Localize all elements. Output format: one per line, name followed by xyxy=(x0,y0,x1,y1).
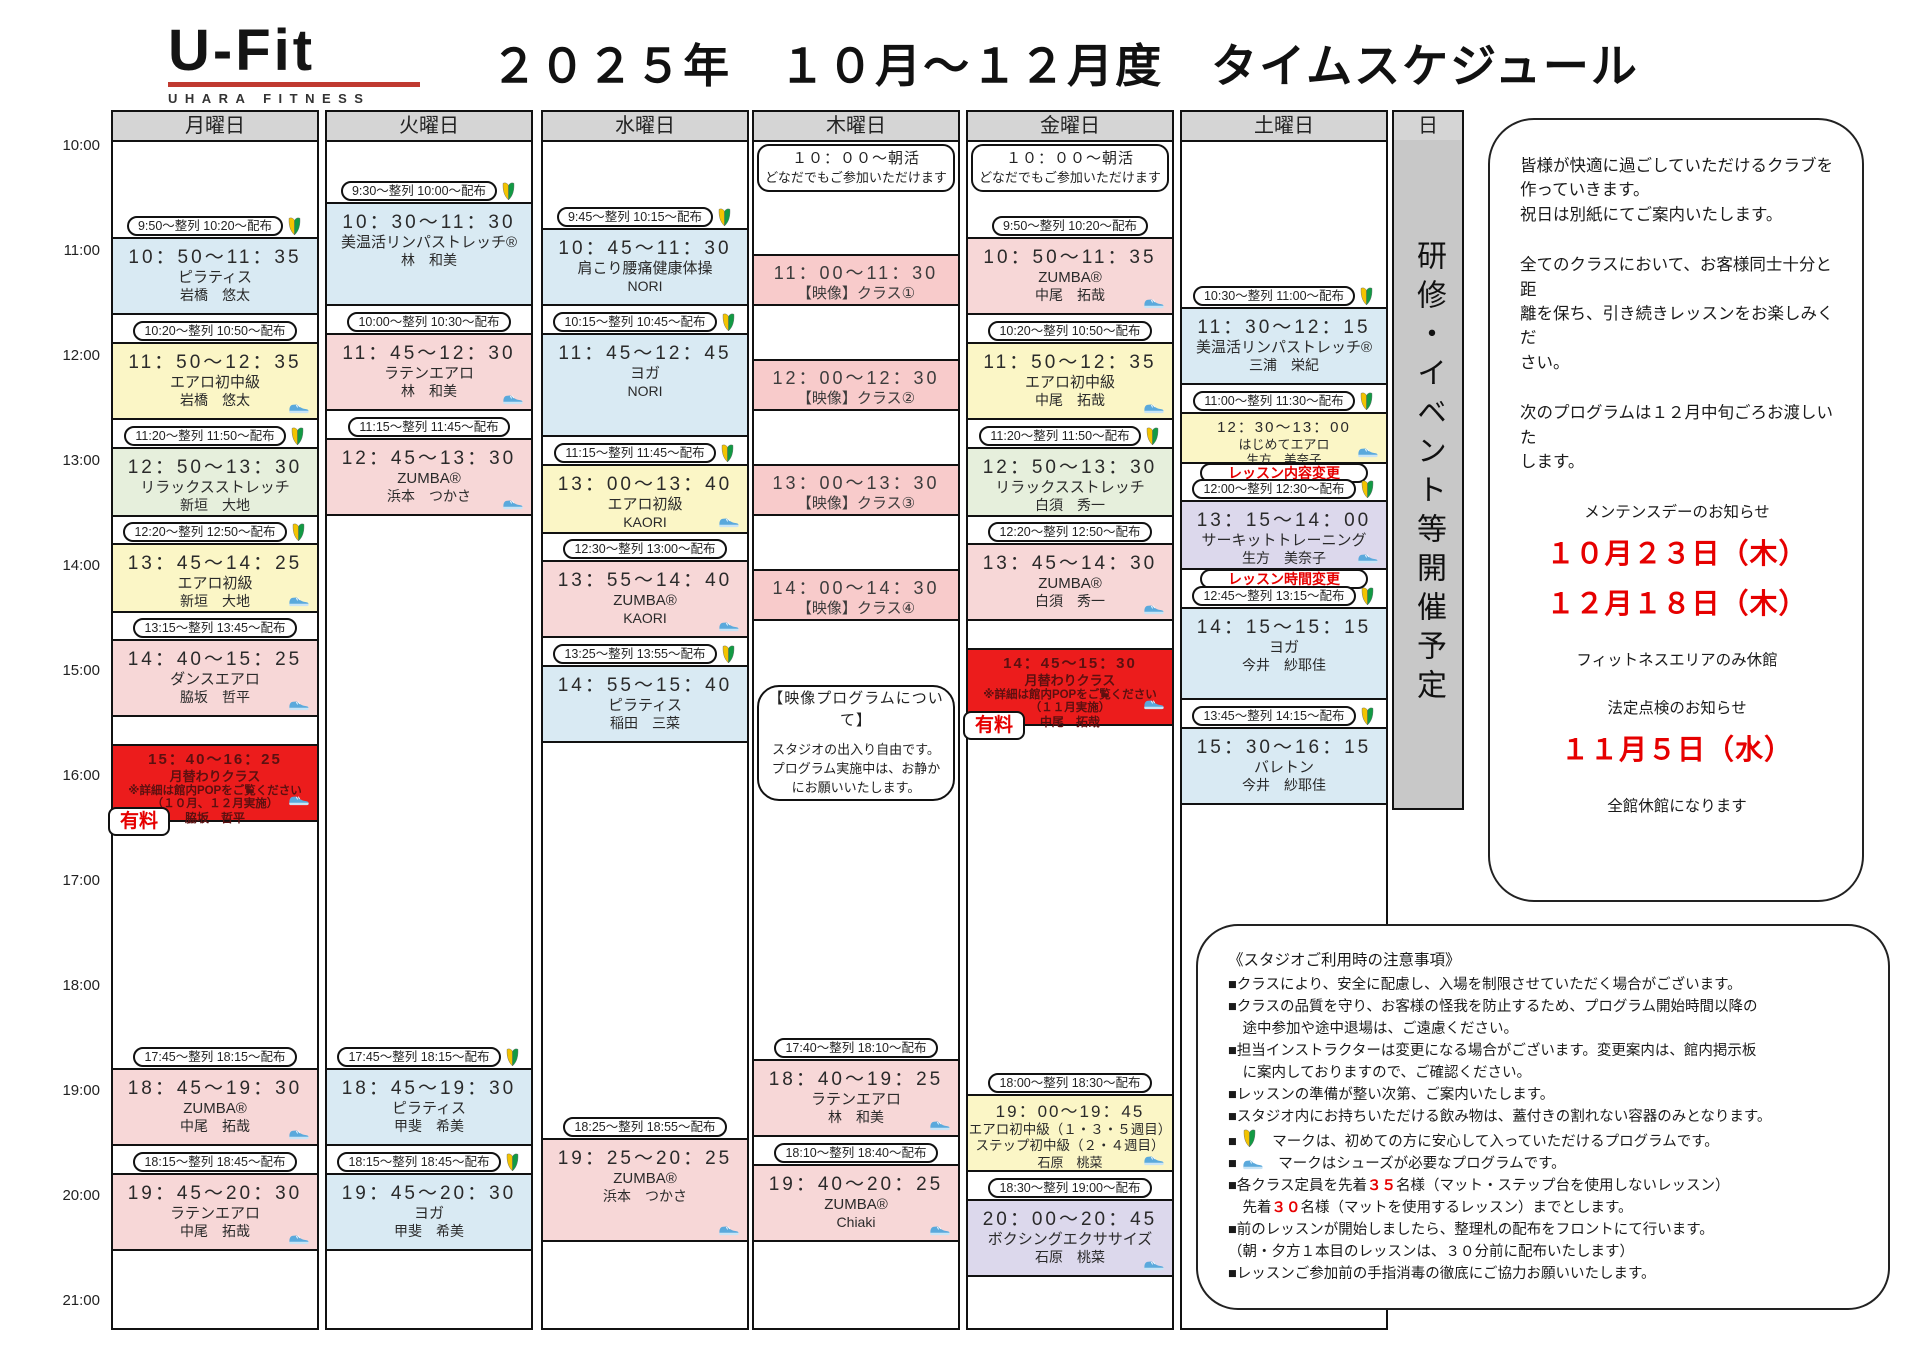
shoes-required-icon xyxy=(1142,1153,1165,1170)
class-instructor: 新垣 大地 xyxy=(113,497,317,515)
column-wednesday: 水曜日10：45～11：30肩こり腰痛健康体操NORI9:45～整列 10:15… xyxy=(541,110,749,1330)
class-name: ZUMBA® xyxy=(543,1170,747,1188)
lineup-time-badge: 12:20～整列 12:50～配布 xyxy=(123,522,286,542)
shoes-required-icon xyxy=(1142,296,1165,309)
class-block: 12：50～13：30リラックスストレッチ新垣 大地 xyxy=(111,447,319,517)
shoes-required-icon xyxy=(1142,401,1165,414)
beginner-mark-icon xyxy=(1241,1128,1258,1148)
maintenance-title: メンテンスデーのお知らせ xyxy=(1520,500,1834,522)
class-block: 14：45～15：30月替わりクラス※詳細は館内POPをご覧ください（１１月実施… xyxy=(966,648,1174,726)
class-name: ヨガ xyxy=(327,1205,531,1223)
class-time: 19：25～20：25 xyxy=(543,1143,747,1170)
class-instructor: 甲斐 希美 xyxy=(327,1118,531,1136)
shoes-required-icon xyxy=(287,401,310,418)
info-box-line: プログラム実施中は、お静か xyxy=(759,760,953,779)
notes-text: ■ xyxy=(1228,1134,1241,1150)
notes-line: 先着３０名様（マットを使用するレッスン）までとします。 xyxy=(1228,1197,1864,1219)
class-name: ダンスエアロ xyxy=(113,671,317,689)
class-name: 月替わりクラス xyxy=(113,769,317,785)
time-label: 12:00 xyxy=(34,347,100,364)
notes-text: 先着 xyxy=(1228,1200,1272,1216)
shoes-required-icon xyxy=(1142,296,1165,313)
shoes-required-icon xyxy=(928,1118,951,1135)
class-name: バレトン xyxy=(1182,759,1386,777)
class-name: ZUMBA® xyxy=(327,470,531,488)
column-sunday: 日 研修・イベント等開催予定 xyxy=(1392,110,1464,810)
class-time: 13：45～14：30 xyxy=(968,548,1172,575)
class-time: 13：15～14：00 xyxy=(1182,505,1386,532)
shoes-required-icon xyxy=(717,1223,740,1236)
shoes-required-icon xyxy=(287,1127,310,1144)
lineup-time-badge: 12:20～整列 12:50～配布 xyxy=(988,522,1151,542)
shoes-required-icon xyxy=(1142,697,1165,714)
class-block: 12：50～13：30リラックスストレッチ白須 秀一 xyxy=(966,447,1174,517)
notes-line: ■クラスの品質を守り、お客様の怪我を防止するため、プログラム開始時間以降の xyxy=(1228,996,1864,1018)
time-label: 11:00 xyxy=(34,242,100,259)
column-friday: 金曜日１０：００～朝活どなだでもご参加いただけます10：50～11：35ZUMB… xyxy=(966,110,1174,1330)
class-time: 14：00～14：30 xyxy=(754,574,958,600)
class-time: 14：45～15：30 xyxy=(968,652,1172,673)
notes-text: マークはシューズが必要なプログラムです。 xyxy=(1264,1156,1566,1172)
class-name: ZUMBA® xyxy=(113,1100,317,1118)
class-block: 20：00～20：45ボクシングエクササイズ石原 桃菜 xyxy=(966,1199,1174,1277)
class-block: 12：45～13：30ZUMBA®浜本 つかさ xyxy=(325,438,533,516)
lineup-time-badge: 11:20～整列 11:50～配布 xyxy=(979,426,1140,446)
notes-lines: ■クラスにより、安全に配慮し、入場を制限させていただく場合がございます。■クラス… xyxy=(1228,974,1864,1285)
shoes-required-icon xyxy=(1142,602,1165,615)
shoes-required-icon xyxy=(287,793,310,810)
notes-text: ■ xyxy=(1228,1156,1241,1172)
shoes-required-icon xyxy=(1356,445,1379,458)
class-name: ボクシングエクササイズ xyxy=(968,1231,1172,1249)
shoes-required-icon xyxy=(928,1223,951,1236)
notes-line: ■クラスにより、安全に配慮し、入場を制限させていただく場合がございます。 xyxy=(1228,974,1864,996)
class-block: 13：45～14：30ZUMBA®白須 秀一 xyxy=(966,543,1174,621)
inspection-date: １１月５日（水） xyxy=(1520,728,1834,768)
class-block: 14：55～15：40ピラティス稲田 三菜 xyxy=(541,665,749,743)
class-time: 18：40～19：25 xyxy=(754,1064,958,1091)
class-instructor: NORI xyxy=(543,278,747,296)
class-name: 月替わりクラス xyxy=(968,673,1172,689)
shoes-required-icon xyxy=(1356,551,1379,564)
notes-line: に案内しておりますので、ご確認ください。 xyxy=(1228,1062,1864,1084)
info-box-line: スタジオの出入り自由です。 xyxy=(759,741,953,760)
class-time: 14：15～15：15 xyxy=(1182,612,1386,639)
logo-brand-text: U-Fit xyxy=(168,22,428,80)
class-badge-row: 18:15～整列 18:45～配布 xyxy=(113,1152,317,1172)
class-name: ZUMBA® xyxy=(968,269,1172,287)
shoes-required-icon xyxy=(1241,1157,1264,1170)
info-box-line: どなだでもご参加いただけます xyxy=(973,169,1167,188)
class-badge-row: 9:50～整列 10:20～配布 xyxy=(968,216,1172,236)
class-block: 12：00～12：30【映像】クラス② xyxy=(752,359,960,411)
column-monday: 月曜日10：50～11：35ピラティス岩橋 悠太9:50～整列 10:20～配布… xyxy=(111,110,319,1330)
notes-line: （朝・夕方１本目のレッスンは、３０分前に配布いたします） xyxy=(1228,1241,1864,1263)
morning-activity-box: １０：００～朝活どなだでもご参加いただけます xyxy=(971,144,1169,192)
notes-line: ■スタジオ内にお持ちいただける飲み物は、蓋付きの割れない容器のみとなります。 xyxy=(1228,1106,1864,1128)
notes-text: （朝・夕方１本目のレッスンは、３０分前に配布いたします） xyxy=(1228,1244,1634,1260)
shoes-required-icon xyxy=(1142,1153,1165,1166)
time-label: 21:00 xyxy=(34,1292,100,1309)
class-block: 19：40～20：25ZUMBA®Chiaki xyxy=(752,1164,960,1242)
shoes-required-icon xyxy=(501,497,524,510)
class-instructor: 三浦 栄紀 xyxy=(1182,357,1386,375)
class-badge-row: 12:30～整列 13:00～配布 xyxy=(543,539,747,559)
info-panel: 皆様が快適に過ごしていただけるクラブを 作っていきます。 祝日は別紙にてご案内い… xyxy=(1488,118,1864,902)
shoes-required-icon xyxy=(1356,551,1379,568)
lineup-time-badge: 12:45～整列 13:15～配布 xyxy=(1192,586,1355,606)
time-label: 15:00 xyxy=(34,662,100,679)
lineup-time-badge: 17:45～整列 18:15～配布 xyxy=(133,1047,296,1067)
lineup-time-badge: 11:15～整列 11:45～配布 xyxy=(554,443,715,463)
class-block: 15：30～16：15バレトン今井 紗耶佳 xyxy=(1180,727,1388,805)
class-time: 13：00～13：40 xyxy=(543,469,747,496)
info-paragraph: 次のプログラムは１２月中旬ごろお渡しいた します。 xyxy=(1520,401,1834,474)
class-name: エアロ初中級（１・３・５週目） xyxy=(968,1122,1172,1138)
maintenance-note: フィットネスエリアのみ休館 xyxy=(1520,648,1834,670)
time-label: 14:00 xyxy=(34,557,100,574)
class-block: 13：15～14：00サーキットトレーニング生方 美奈子 xyxy=(1180,500,1388,570)
time-label: 20:00 xyxy=(34,1187,100,1204)
notes-line: ■ マークは、初めての方に安心して入っていただけるプログラムです。 xyxy=(1228,1128,1864,1153)
class-instructor: 今井 紗耶佳 xyxy=(1182,777,1386,795)
shoes-required-icon xyxy=(1356,445,1379,462)
notes-line: ■前のレッスンが開始しましたら、整理札の配布をフロントにて行います。 xyxy=(1228,1219,1864,1241)
class-block: 11：45～12：30ラテンエアロ林 和美 xyxy=(325,333,533,411)
notes-line: ■担当インストラクターは変更になる場合がございます。変更案内は、館内掲示板 xyxy=(1228,1040,1864,1062)
class-badge-row: 10:20～整列 10:50～配布 xyxy=(968,321,1172,341)
lineup-time-badge: 9:45～整列 10:15～配布 xyxy=(557,207,713,227)
info-box-line: １０：００～朝活 xyxy=(759,148,953,170)
class-name: 美温活リンパストレッチ® xyxy=(1182,339,1386,357)
lineup-time-badge: 18:15～整列 18:45～配布 xyxy=(337,1152,500,1172)
info-box-line xyxy=(759,731,953,741)
schedule-poster: U-Fit UHARA FITNESS ２０２５年 １０月～１２月度 タイムスケ… xyxy=(0,0,1920,1357)
shoes-required-icon xyxy=(928,1223,951,1240)
class-time: 13：00～13：30 xyxy=(754,469,958,495)
class-time: 12：00～12：30 xyxy=(754,364,958,390)
class-name: ラテンエアロ xyxy=(754,1091,958,1109)
day-header-tuesday: 火曜日 xyxy=(327,112,531,142)
column-thursday: 木曜日１０：００～朝活どなだでもご参加いただけます【映像プログラムについて】スタ… xyxy=(752,110,960,1330)
time-label: 13:00 xyxy=(34,452,100,469)
lineup-time-badge: 12:30～整列 13:00～配布 xyxy=(563,539,726,559)
class-time: 11：50～12：35 xyxy=(968,347,1172,374)
class-badge-row: 18:00～整列 18:30～配布 xyxy=(968,1073,1172,1093)
shoes-required-icon xyxy=(717,515,740,528)
shoes-required-icon xyxy=(501,497,524,514)
class-name: ピラティス xyxy=(113,269,317,287)
shoes-required-icon xyxy=(1142,602,1165,619)
shoes-required-icon xyxy=(717,515,740,532)
class-block: 14：00～14：30【映像】クラス④ xyxy=(752,569,960,621)
notes-line: ■ マークはシューズが必要なプログラムです。 xyxy=(1228,1153,1864,1175)
class-name: 肩こり腰痛健康体操 xyxy=(543,260,747,278)
shoes-required-icon xyxy=(501,392,524,405)
class-time: 19：00～19：45 xyxy=(968,1097,1172,1122)
class-time: 12：50～13：30 xyxy=(113,452,317,479)
class-block: 15：40～16：25月替わりクラス※詳細は館内POPをご覧ください（１０月、１… xyxy=(111,744,319,822)
ufit-logo: U-Fit UHARA FITNESS xyxy=(168,22,428,106)
class-time: 11：50～12：35 xyxy=(113,347,317,374)
inspection-title: 法定点検のお知らせ xyxy=(1520,696,1834,718)
class-badge-row: 18:30～整列 19:00～配布 xyxy=(968,1178,1172,1198)
class-block: 13：45～14：25エアロ初級新垣 大地 xyxy=(111,543,319,613)
lineup-time-badge: 18:25～整列 18:55～配布 xyxy=(563,1117,726,1137)
notes-line: ■レッスンご参加前の手指消毒の徹底にご協力お願いいたします。 xyxy=(1228,1263,1864,1285)
class-block: 19：00～19：45エアロ初中級（１・３・５週目）ステップ初中級（２・４週目）… xyxy=(966,1094,1174,1172)
class-name: 【映像】クラス① xyxy=(754,285,958,303)
morning-activity-box: １０：００～朝活どなだでもご参加いただけます xyxy=(757,144,955,192)
notes-title: 《スタジオご利用時の注意事項》 xyxy=(1228,948,1864,970)
notes-text: 名様（マットを使用するレッスン）までとします。 xyxy=(1301,1200,1633,1216)
class-block: 11：45～12：45ヨガNORI xyxy=(541,333,749,437)
day-header-saturday: 土曜日 xyxy=(1182,112,1386,142)
class-badge-row: 10:00～整列 10:30～配布 xyxy=(327,312,531,332)
class-block: 13：00～13：30【映像】クラス③ xyxy=(752,464,960,516)
lesson-change-label: レッスン内容変更 xyxy=(1200,463,1367,483)
notes-text: 名様（マット・ステップ台を使用しないレッスン） xyxy=(1396,1178,1730,1194)
page-title: ２０２５年 １０月～１２月度 タイムスケジュール xyxy=(440,30,1690,96)
class-name: 【映像】クラス④ xyxy=(754,600,958,618)
shoes-required-icon xyxy=(717,1223,740,1240)
notes-line: 途中参加や途中退場は、ご遠慮ください。 xyxy=(1228,1018,1864,1040)
class-time: 12：30～13：00 xyxy=(1182,416,1386,437)
class-badge-row: 10:20～整列 10:50～配布 xyxy=(113,321,317,341)
class-time: 12：50～13：30 xyxy=(968,452,1172,479)
inspection-note: 全館休館になります xyxy=(1520,794,1834,816)
lineup-time-badge: 13:25～整列 13:55～配布 xyxy=(553,644,716,664)
class-time: 15：30～16：15 xyxy=(1182,732,1386,759)
lineup-time-badge: 11:20～整列 11:50～配布 xyxy=(124,426,285,446)
notes-text: マークは、初めての方に安心して入っていただけるプログラムです。 xyxy=(1258,1134,1719,1150)
lineup-time-badge: 9:50～整列 10:20～配布 xyxy=(992,216,1148,236)
column-tuesday: 火曜日10：30～11：30美温活リンパストレッチ®林 和美9:30～整列 10… xyxy=(325,110,533,1330)
class-block: 11：30～12：15美温活リンパストレッチ®三浦 栄紀 xyxy=(1180,307,1388,385)
time-label: 10:00 xyxy=(34,137,100,154)
class-instructor: 甲斐 希美 xyxy=(327,1223,531,1241)
day-header-thursday: 木曜日 xyxy=(754,112,958,142)
class-block: 14：40～15：25ダンスエアロ脇坂 哲平 xyxy=(111,639,319,717)
shoes-required-icon xyxy=(1142,1258,1165,1271)
class-time: 11：00～11：30 xyxy=(754,259,958,285)
class-name: ピラティス xyxy=(327,1100,531,1118)
class-block: 18：45～19：30ピラティス甲斐 希美 xyxy=(325,1068,533,1146)
notes-text: ■クラスの品質を守り、お客様の怪我を防止するため、プログラム開始時間以降の xyxy=(1228,999,1757,1015)
notes-text: ■クラスにより、安全に配慮し、入場を制限させていただく場合がございます。 xyxy=(1228,977,1742,993)
class-time: 14：55～15：40 xyxy=(543,670,747,697)
notes-text: ■レッスンご参加前の手指消毒の徹底にご協力お願いいたします。 xyxy=(1228,1266,1656,1282)
shoes-required-icon xyxy=(1142,401,1165,418)
notes-line: ■各クラス定員を先着３５名様（マット・ステップ台を使用しないレッスン） xyxy=(1228,1175,1864,1197)
shoes-required-icon xyxy=(1142,1258,1165,1275)
notes-text: ■各クラス定員を先着 xyxy=(1228,1178,1367,1194)
info-box-line: １０：００～朝活 xyxy=(973,148,1167,170)
class-time: 10：45～11：30 xyxy=(543,233,747,260)
class-badge-row: 11:15～整列 11:45～配布 xyxy=(327,417,531,437)
shoes-required-icon xyxy=(287,401,310,414)
notes-text: ■前のレッスンが開始しましたら、整理札の配布をフロントにて行います。 xyxy=(1228,1222,1714,1238)
class-block: 11：00～11：30【映像】クラス① xyxy=(752,254,960,306)
class-instructor: 岩橋 悠太 xyxy=(113,287,317,305)
class-time: 12：45～13：30 xyxy=(327,443,531,470)
class-block: 10：30～11：30美温活リンパストレッチ®林 和美 xyxy=(325,202,533,306)
shoes-required-icon xyxy=(287,594,310,611)
lineup-time-badge: 10:00～整列 10:30～配布 xyxy=(347,312,510,332)
notes-text: に案内しておりますので、ご確認ください。 xyxy=(1228,1065,1531,1081)
class-block: 10：50～11：35ピラティス岩橋 悠太 xyxy=(111,237,319,315)
class-block: 11：50～12：35エアロ初中級中尾 拓哉 xyxy=(966,342,1174,420)
notes-text: ■スタジオ内にお持ちいただける飲み物は、蓋付きの割れない容器のみとなります。 xyxy=(1228,1109,1771,1125)
day-header-wednesday: 水曜日 xyxy=(543,112,747,142)
class-name: 美温活リンパストレッチ® xyxy=(327,234,531,252)
shoes-required-icon xyxy=(287,594,310,607)
shoes-required-icon xyxy=(287,1127,310,1140)
class-time: 18：45～19：30 xyxy=(113,1073,317,1100)
notes-text: ■担当インストラクターは変更になる場合がございます。変更案内は、館内掲示板 xyxy=(1228,1043,1756,1059)
paid-badge: 有料 xyxy=(108,807,170,836)
lineup-time-badge: 17:45～整列 18:15～配布 xyxy=(337,1047,500,1067)
class-instructor: 稲田 三菜 xyxy=(543,715,747,733)
shoes-required-icon xyxy=(1142,697,1165,710)
class-name: エアロ初中級 xyxy=(113,374,317,392)
shoes-required-icon xyxy=(501,392,524,409)
class-time: 10：50～11：35 xyxy=(968,242,1172,269)
class-block: 18：45～19：30ZUMBA®中尾 拓哉 xyxy=(111,1068,319,1146)
lineup-time-badge: 11:15～整列 11:45～配布 xyxy=(348,417,509,437)
class-instructor: 浜本 つかさ xyxy=(543,1188,747,1206)
class-badge-row: 18:10～整列 18:40～配布 xyxy=(754,1143,958,1163)
class-time: 10：50～11：35 xyxy=(113,242,317,269)
logo-subtitle: UHARA FITNESS xyxy=(168,91,428,106)
class-time: 15：40～16：25 xyxy=(113,748,317,769)
time-label: 19:00 xyxy=(34,1082,100,1099)
sunday-vertical-text: 研修・イベント等開催予定 xyxy=(1406,240,1450,708)
lineup-time-badge: 10:30～整列 11:00～配布 xyxy=(1193,286,1355,306)
shoes-required-icon xyxy=(717,619,740,632)
class-block: 18：40～19：25ラテンエアロ林 和美 xyxy=(752,1059,960,1137)
class-name: 【映像】クラス② xyxy=(754,390,958,408)
notes-text: 途中参加や途中退場は、ご遠慮ください。 xyxy=(1228,1021,1518,1037)
lineup-time-badge: 10:15～整列 10:45～配布 xyxy=(553,312,716,332)
lineup-time-badge: 18:10～整列 18:40～配布 xyxy=(774,1143,937,1163)
class-name: リラックスストレッチ xyxy=(113,479,317,497)
lineup-time-badge: 17:40～整列 18:10～配布 xyxy=(774,1038,937,1058)
class-time: 19：45～20：30 xyxy=(113,1178,317,1205)
day-header-monday: 月曜日 xyxy=(113,112,317,142)
shoes-required-icon xyxy=(287,1232,310,1249)
day-header-sunday: 日 xyxy=(1394,112,1462,142)
class-name: ZUMBA® xyxy=(754,1196,958,1214)
shoes-required-icon xyxy=(928,1118,951,1131)
class-block: 19：25～20：25ZUMBA®浜本 つかさ xyxy=(541,1138,749,1242)
class-time: 13：45～14：25 xyxy=(113,548,317,575)
day-header-friday: 金曜日 xyxy=(968,112,1172,142)
class-time: 14：40～15：25 xyxy=(113,644,317,671)
shoes-required-icon xyxy=(287,793,310,806)
lineup-time-badge: 13:45～整列 14:15～配布 xyxy=(1192,706,1355,726)
time-label: 17:00 xyxy=(34,872,100,889)
shoes-required-icon xyxy=(287,1232,310,1245)
maintenance-date-1: １０月２３日（木） xyxy=(1520,532,1834,572)
class-name: リラックスストレッチ xyxy=(968,479,1172,497)
time-label: 16:00 xyxy=(34,767,100,784)
info-paragraph: 皆様が快適に過ごしていただけるクラブを 作っていきます。 祝日は別紙にてご案内い… xyxy=(1520,154,1834,227)
studio-notes-panel: 《スタジオご利用時の注意事項》 ■クラスにより、安全に配慮し、入場を制限させてい… xyxy=(1196,924,1890,1310)
class-time: 11：30～12：15 xyxy=(1182,312,1386,339)
lineup-time-badge: 10:20～整列 10:50～配布 xyxy=(133,321,296,341)
class-badge-row: 13:15～整列 13:45～配布 xyxy=(113,618,317,638)
class-block: 14：15～15：15ヨガ今井 紗耶佳 xyxy=(1180,607,1388,700)
lineup-time-badge: 10:20～整列 10:50～配布 xyxy=(988,321,1151,341)
lineup-time-badge: 11:00～整列 11:30～配布 xyxy=(1193,391,1354,411)
class-badge-row: 18:25～整列 18:55～配布 xyxy=(543,1117,747,1137)
info-paragraphs: 皆様が快適に過ごしていただけるクラブを 作っていきます。 祝日は別紙にてご案内い… xyxy=(1520,154,1834,474)
class-time: 10：30～11：30 xyxy=(327,207,531,234)
sunday-note-area: 研修・イベント等開催予定 xyxy=(1394,140,1462,808)
class-name: エアロ初級 xyxy=(543,496,747,514)
class-badge-row: 17:40～整列 18:10～配布 xyxy=(754,1038,958,1058)
shoes-required-icon xyxy=(287,698,310,711)
video-program-box: 【映像プログラムについて】スタジオの出入り自由です。プログラム実施中は、お静かに… xyxy=(757,685,955,801)
class-name: ヨガ xyxy=(543,365,747,383)
shoes-required-icon xyxy=(717,619,740,636)
info-box-line: 【映像プログラムについて】 xyxy=(759,688,953,732)
shoes-required-icon xyxy=(287,698,310,715)
lineup-time-badge: 9:30～整列 10:00～配布 xyxy=(341,181,497,201)
class-time: 13：55～14：40 xyxy=(543,565,747,592)
class-name: ZUMBA® xyxy=(543,592,747,610)
class-name: サーキットトレーニング xyxy=(1182,532,1386,550)
notes-text: ■レッスンの準備が整い次第、ご案内いたします。 xyxy=(1228,1087,1554,1103)
class-time: 11：45～12：45 xyxy=(543,338,747,365)
notes-red-number: ３０ xyxy=(1272,1200,1301,1216)
class-badge-row: 17:45～整列 18:15～配布 xyxy=(113,1047,317,1067)
class-instructor: 白須 秀一 xyxy=(968,497,1172,515)
class-block: 19：45～20：30ヨガ甲斐 希美 xyxy=(325,1173,533,1251)
class-instructor: NORI xyxy=(543,383,747,401)
class-block: 19：45～20：30ラテンエアロ中尾 拓哉 xyxy=(111,1173,319,1251)
class-time: 11：45～12：30 xyxy=(327,338,531,365)
class-name: 【映像】クラス③ xyxy=(754,495,958,513)
class-block: 12：30～13：00はじめてエアロ生方 美奈子 xyxy=(1180,412,1388,464)
class-instructor: 林 和美 xyxy=(327,252,531,270)
info-box-line: にお願いいたします。 xyxy=(759,779,953,798)
class-name: ZUMBA® xyxy=(968,575,1172,593)
notes-line: ■レッスンの準備が整い次第、ご案内いたします。 xyxy=(1228,1084,1864,1106)
info-box-line: どなだでもご参加いただけます xyxy=(759,169,953,188)
lineup-time-badge: 18:00～整列 18:30～配布 xyxy=(988,1073,1151,1093)
lineup-time-badge: 13:15～整列 13:45～配布 xyxy=(133,618,296,638)
class-time: 18：45～19：30 xyxy=(327,1073,531,1100)
class-block: 10：45～11：30肩こり腰痛健康体操NORI xyxy=(541,228,749,306)
class-name: エアロ初級 xyxy=(113,575,317,593)
class-name: ラテンエアロ xyxy=(327,365,531,383)
time-label: 18:00 xyxy=(34,977,100,994)
class-name: ラテンエアロ xyxy=(113,1205,317,1223)
maintenance-date-2: １２月１８日（木） xyxy=(1520,582,1834,622)
class-name: ヨガ xyxy=(1182,639,1386,657)
class-time: 19：40～20：25 xyxy=(754,1169,958,1196)
class-block: 13：55～14：40ZUMBA®KAORI xyxy=(541,560,749,638)
class-time: 20：00～20：45 xyxy=(968,1204,1172,1231)
class-block: 13：00～13：40エアロ初級KAORI xyxy=(541,464,749,534)
class-time: 19：45～20：30 xyxy=(327,1178,531,1205)
class-block: 11：50～12：35エアロ初中級岩橋 悠太 xyxy=(111,342,319,420)
notes-red-number: ３５ xyxy=(1367,1178,1396,1194)
lineup-time-badge: 9:50～整列 10:20～配布 xyxy=(127,216,283,236)
info-paragraph: 全てのクラスにおいて、お客様同士十分と距 離を保ち、引き続きレッスンをお楽しみく… xyxy=(1520,253,1834,375)
